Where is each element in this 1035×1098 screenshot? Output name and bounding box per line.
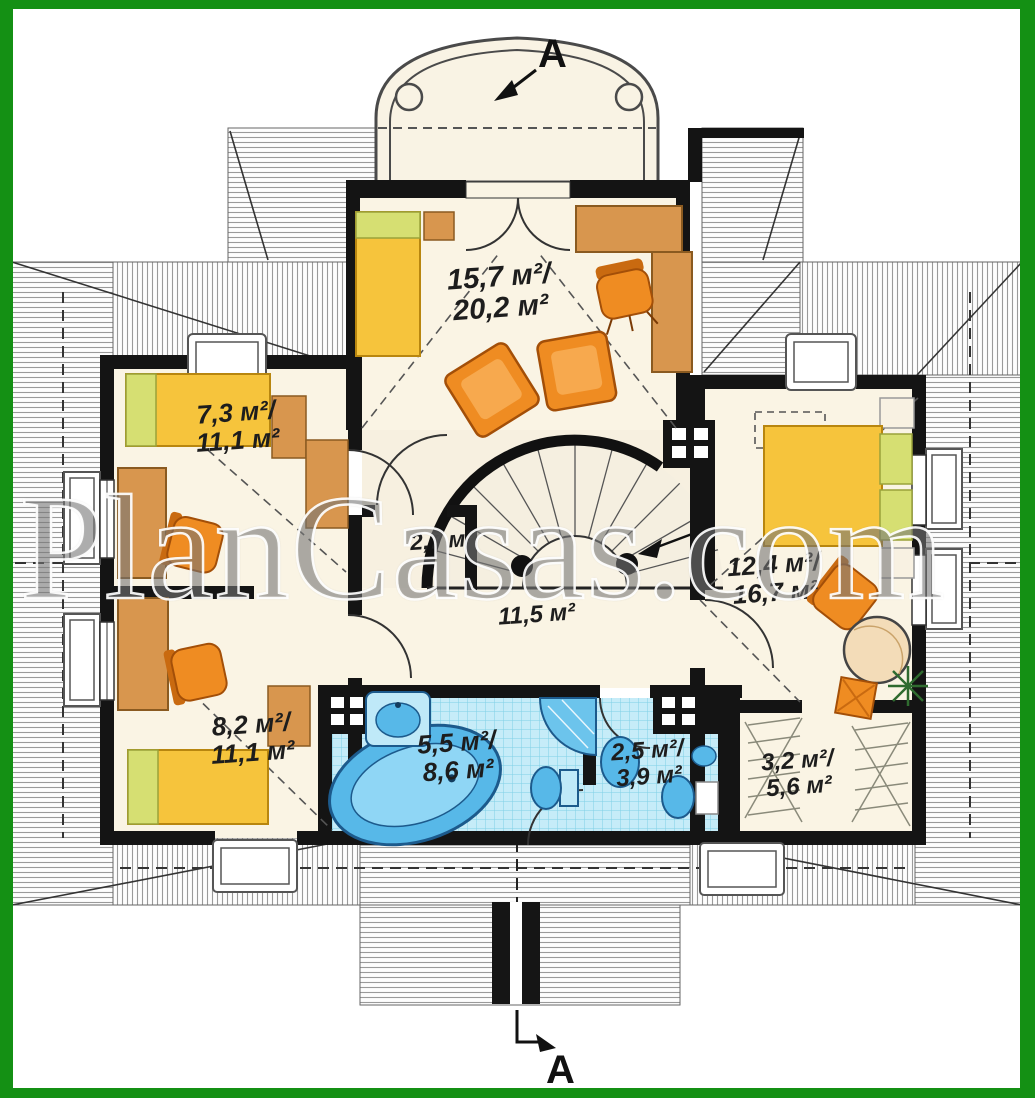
section-marker-top: A (538, 32, 567, 77)
floor-plan-drawing (0, 0, 1035, 1098)
balcony (376, 38, 658, 182)
section-marker-bottom: A (546, 1048, 575, 1093)
bed-icon (356, 212, 420, 356)
section-arrow-bottom (517, 1010, 556, 1052)
armchair-icon (536, 330, 617, 411)
floor-plan-image: 15,7 м²/ 20,2 м² 7,3 м²/ 11,1 м² 8,2 м²/… (0, 0, 1035, 1098)
chimney (492, 902, 540, 1004)
room-label-bathroom: 5,5 м²/ 8,6 м² (416, 725, 498, 786)
balcony-door-threshold (466, 182, 570, 198)
room-label-wc: 2,5 м²/ 3,9 м² (610, 736, 686, 793)
cabinet (306, 440, 348, 528)
toilet-icon (531, 767, 578, 809)
room-label-top-bedroom: 15,7 м²/ 20,2 м² (446, 258, 554, 328)
room-label-closet: 2,7 м² (409, 526, 474, 555)
room-label-right-bedroom: 12,4 м²/ 16,7 м² (726, 547, 823, 610)
column (511, 555, 533, 577)
pouf-icon (835, 677, 877, 719)
room-label-left-bedroom: 7,3 м²/ 11,1 м² (193, 395, 281, 457)
column (616, 553, 638, 575)
room-label-lower-left-bedroom: 8,2 м²/ 11,1 м² (208, 707, 296, 769)
round-table-icon (844, 617, 910, 683)
nightstand (424, 212, 454, 240)
room-label-hall: 11,5 м² (497, 599, 576, 630)
desk-icon (118, 468, 166, 578)
desk-icon (118, 598, 168, 710)
room-label-wardrobe: 3,2 м²/ 5,6 м² (760, 746, 836, 803)
plant-icon (888, 666, 928, 706)
